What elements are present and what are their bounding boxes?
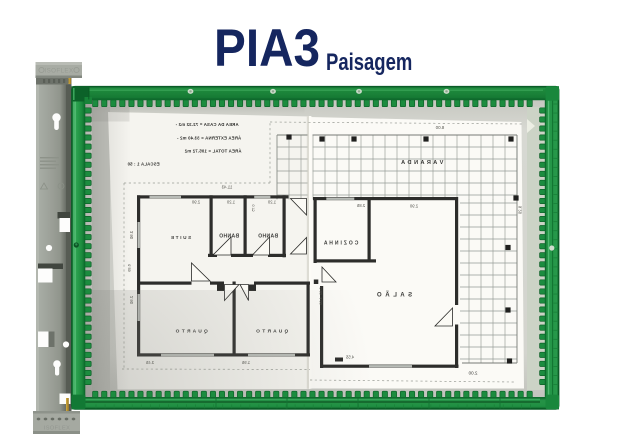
svg-text:ESCALA 1 : 50: ESCALA 1 : 50 [127, 162, 160, 167]
svg-text:ISOFLEX: ISOFLEX [44, 426, 70, 432]
svg-text:2.85: 2.85 [356, 203, 365, 208]
svg-text:2.90: 2.90 [409, 204, 418, 209]
svg-text:2.00: 2.00 [468, 371, 477, 376]
svg-text:8.00: 8.00 [435, 125, 444, 130]
svg-text:9.20: 9.20 [518, 206, 523, 215]
svg-text:ISOFLEX: ISOFLEX [45, 68, 74, 75]
svg-text:0.75: 0.75 [252, 205, 256, 212]
svg-text:C O Z I N H A: C O Z I N H A [323, 241, 358, 247]
svg-text:BANHO: BANHO [219, 234, 239, 240]
svg-text:1.20: 1.20 [267, 200, 276, 205]
svg-text:S U I T E: S U I T E [171, 235, 191, 240]
svg-text:ÁREA TOTAL = 105.72 m2: ÁREA TOTAL = 105.72 m2 [184, 149, 241, 154]
svg-text:AREA DA CASA = 72.32 m2 -: AREA DA CASA = 72.32 m2 - [175, 122, 239, 127]
svg-text:V A R A N D A: V A R A N D A [401, 160, 444, 166]
svg-text:2.90: 2.90 [191, 200, 200, 205]
svg-text:1.20: 1.20 [226, 200, 235, 205]
svg-text:11.43: 11.43 [221, 185, 232, 190]
svg-text:ÁREA EXTERNA = 33.40 m2 -: ÁREA EXTERNA = 33.40 m2 - [177, 136, 242, 141]
svg-text:BANHO: BANHO [258, 234, 278, 240]
